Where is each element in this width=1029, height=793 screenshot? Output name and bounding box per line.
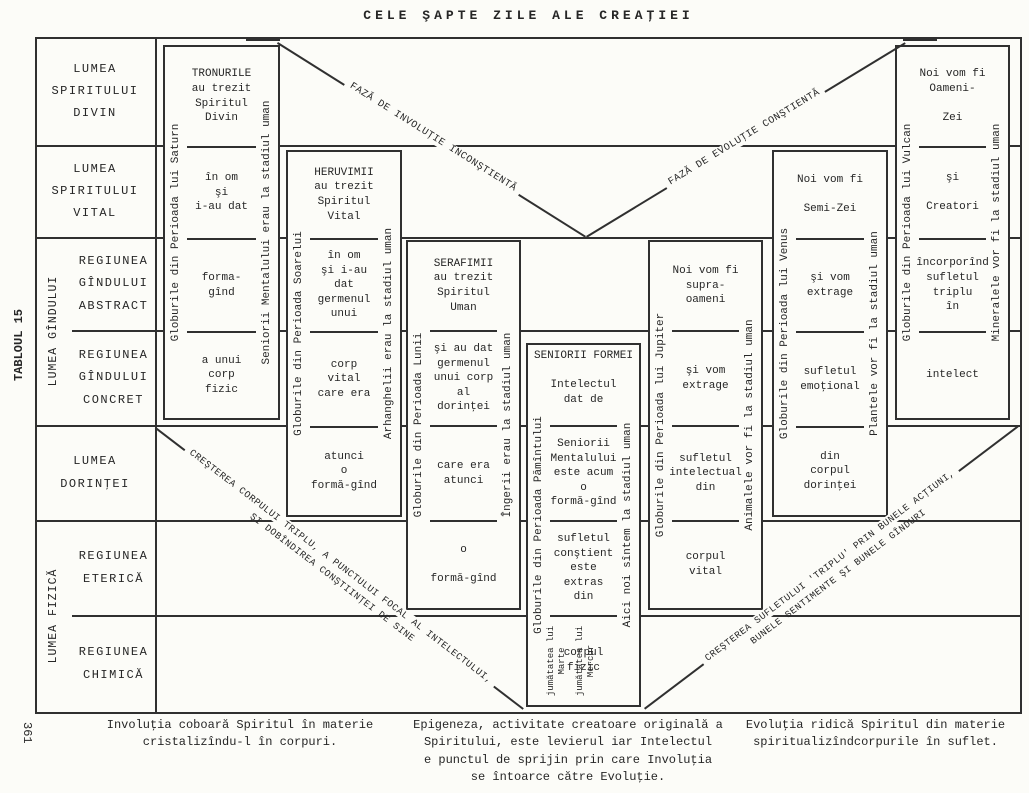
period-luna-cell-4: o formă-gînd [430, 520, 497, 608]
period-jupiter-cell-4: corpul vital [672, 520, 739, 608]
period-saturn-cell-3: forma- gînd [187, 238, 256, 331]
period-saturn-cell-4: a unui corp fizic [187, 331, 256, 418]
period-box-soare: Globurile din Perioada Soarelui Arhanghe… [286, 150, 402, 517]
period-vulcan-humanity-label: Mineralele vor fi la stadiul uman [986, 47, 1008, 418]
grid-line [35, 37, 1022, 39]
period-soare-globes-label: Globurile din Perioada Soarelui [288, 152, 310, 515]
caption-evolution: Evoluţia ridică Spiritul din materie spi… [728, 717, 1023, 752]
period-jupiter-cell-3: sufletul intelectual din [672, 425, 739, 520]
row-label-lumea-spiritului-divin: LUMEA SPIRITULUI DIVIN [35, 37, 155, 145]
period-vulcan-cell-3: încorporînd sufletul triplu în [919, 238, 986, 331]
period-box-saturn: Globurile din Perioada lui Saturn Senior… [163, 45, 280, 420]
period-vulcan-cell-4: intelect [919, 331, 986, 418]
period-box-luna: Globurile din Perioada Lunii Îngerii era… [406, 240, 521, 610]
period-soare-humanity-label: Arhanghelii erau la stadiul uman [378, 152, 400, 515]
grid-line [35, 712, 1022, 714]
grid-line [155, 37, 157, 714]
period-box-venus: Globurile din Perioada lui Venus Plantel… [772, 150, 888, 517]
diagram-page: CELE ŞAPTE ZILE ALE CREAŢIEI LUMEA SPIRI… [0, 0, 1029, 793]
period-luna-cell-2: şi au dat germenul unui corp al dorinţei [430, 330, 497, 425]
growth-body-label-line2: ŞI DOBÎNDIREA CONŞTIINŢEI DE SINE [244, 508, 421, 647]
period-jupiter-globes-label: Globurile din Perioada lui Jupiter [650, 242, 672, 608]
diagram-title: CELE ŞAPTE ZILE ALE CREAŢIEI [35, 8, 1022, 23]
period-jupiter-humanity-label: Animalele vor fi la stadiul uman [739, 242, 761, 608]
period-saturn-globes-label: Globurile din Perioada lui Saturn [165, 47, 187, 418]
period-box-jupiter: Globurile din Perioada lui Jupiter Anima… [648, 240, 763, 610]
period-soare-cell-2: în om şi i-au dat germenul unui [310, 238, 378, 331]
period-luna-globes-label: Globurile din Perioada Lunii [408, 242, 430, 608]
growth-soul-label-line2: BUNELE SENTIMENTE ŞI BUNELE GÎNDURI [744, 504, 932, 650]
period-soare-cell-4: atunci o formă-gînd [310, 426, 378, 515]
row-label-regiunea-gindului-concret: REGIUNEA GÎNDULUI CONCRET [72, 330, 155, 425]
row-label-lumea-dorintei: LUMEA DORINŢEI [35, 425, 155, 520]
period-pamint-cell-3: sufletul conştient este extras din [550, 520, 617, 615]
period-venus-cell-4: din corpul dorinţei [796, 426, 864, 515]
period-vulcan-globes-label: Globurile din Perioada lui Vulcan [897, 47, 919, 418]
page-number: 361 [20, 722, 34, 744]
grid-line [246, 39, 280, 41]
grid-line [903, 39, 937, 41]
period-box-pamint: SENIORII FORMEI Globurile din Perioada P… [526, 343, 641, 707]
row-label-regiunea-chimica: REGIUNEA CHIMICĂ [72, 615, 155, 712]
period-box-vulcan: Globurile din Perioada lui Vulcan Minera… [895, 45, 1010, 420]
row-group-lumea-fizica: LUMEA FIZICĂ [37, 520, 72, 712]
period-vulcan-cell-2: şi Creatori [919, 146, 986, 238]
row-group-lumea-gindului: LUMEA GÎNDULUI [37, 237, 72, 425]
period-pamint-cell-2: Seniorii Mentalului este acum o formă-gî… [550, 425, 617, 520]
period-saturn-cell-2: în om şi i-au dat [187, 146, 256, 238]
row-label-lumea-spiritului-vital: LUMEA SPIRITULUI VITAL [35, 145, 155, 237]
period-vulcan-cell-1: Noi vom fi Oameni- Zei [919, 47, 986, 146]
period-venus-cell-2: şi vom extrage [796, 238, 864, 331]
period-pamint-cell-1: Intelectul dat de [550, 345, 617, 425]
period-luna-cell-3: care era atunci [430, 425, 497, 520]
period-saturn-cell-1: TRONURILE au trezit Spiritul Divin [187, 47, 256, 146]
period-pamint-mars-half-label: jumătatea lui Marte [546, 617, 568, 705]
period-jupiter-cell-1: Noi vom fi supra- oameni [672, 242, 739, 330]
caption-involution: Involuţia coboară Spiritul în materie cr… [90, 717, 390, 752]
period-venus-globes-label: Globurile din Perioada lui Venus [774, 152, 796, 515]
period-venus-cell-1: Noi vom fi Semi-Zei [796, 152, 864, 238]
row-label-regiunea-eterica: REGIUNEA ETERICĂ [72, 520, 155, 615]
period-luna-humanity-label: Îngerii erau la stadiul uman [497, 242, 519, 608]
caption-epigenesis: Epigeneza, activitate creatoare original… [398, 717, 738, 787]
period-venus-humanity-label: Plantele vor fi la stadiul uman [864, 152, 886, 515]
period-venus-cell-3: sufletul emoţional [796, 331, 864, 426]
period-pamint-mercury-half-label: jumătatea lui Mercur [575, 617, 597, 705]
side-table-label: TABLOUL 15 [6, 280, 32, 410]
period-soare-cell-3: corp vital care era [310, 331, 378, 426]
period-jupiter-cell-2: şi vom extrage [672, 330, 739, 425]
period-soare-cell-1: HERUVIMII au trezit Spiritul Vital [310, 152, 378, 238]
grid-line [1020, 37, 1022, 714]
period-saturn-humanity-label: Seniorii Mentalului erau la stadiul uman [256, 47, 278, 418]
row-label-regiunea-gindului-abstract: REGIUNEA GÎNDULUI ABSTRACT [72, 237, 155, 330]
period-pamint-humanity-label: Aici noi sîntem la stadiul uman [617, 345, 639, 705]
period-luna-cell-1: SERAFIMII au trezit Spiritul Uman [430, 242, 497, 330]
